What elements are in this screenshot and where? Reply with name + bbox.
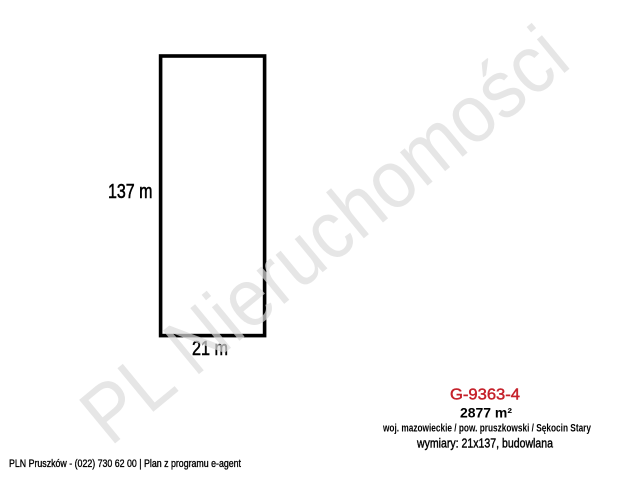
svg-text:woj. mazowieckie / pow. pruszk: woj. mazowieckie / pow. pruszkowski / Sę…: [382, 423, 591, 435]
svg-text:137 m: 137 m: [108, 180, 153, 203]
svg-text:G-9363-4: G-9363-4: [450, 387, 520, 404]
svg-text:2877 m²: 2877 m²: [460, 405, 512, 421]
svg-text:wymiary: 21x137, budowlana: wymiary: 21x137, budowlana: [416, 436, 553, 451]
svg-text:PLN Pruszków - (022) 730 62 00: PLN Pruszków - (022) 730 62 00 | Plan z …: [9, 458, 241, 470]
